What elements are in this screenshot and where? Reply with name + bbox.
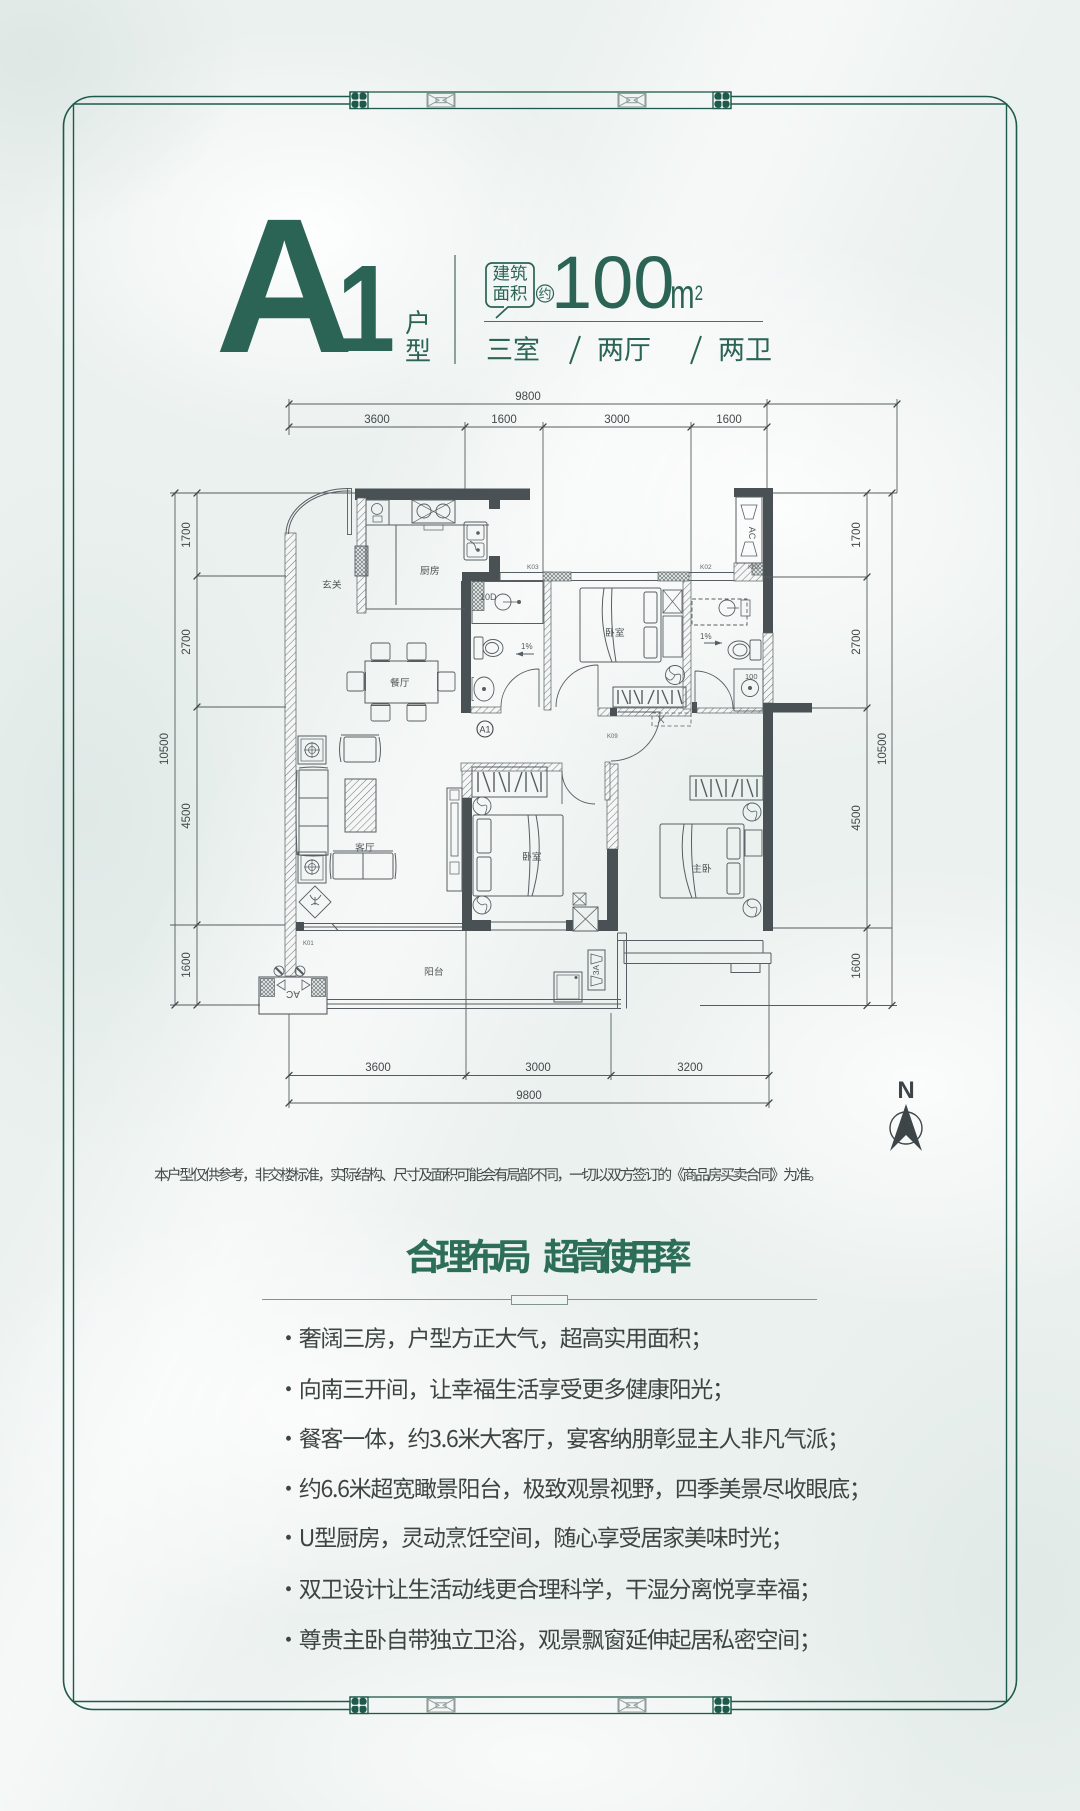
- svg-text:K02: K02: [748, 564, 760, 571]
- svg-text:K02: K02: [700, 564, 712, 571]
- svg-text:AC: AC: [286, 988, 300, 999]
- svg-text:4500: 4500: [181, 803, 193, 829]
- svg-text:3200: 3200: [677, 1062, 703, 1074]
- svg-text:N: N: [897, 1077, 914, 1104]
- svg-text:100: 100: [745, 672, 758, 681]
- svg-text:1600: 1600: [716, 414, 742, 426]
- svg-text:3000: 3000: [525, 1062, 551, 1074]
- svg-text:1700: 1700: [851, 522, 863, 548]
- svg-text:K03: K03: [527, 564, 539, 571]
- svg-text:3000: 3000: [604, 414, 630, 426]
- svg-text:3600: 3600: [365, 1062, 391, 1074]
- svg-text:1600: 1600: [851, 953, 863, 979]
- svg-text:K09: K09: [607, 734, 618, 740]
- svg-text:3600: 3600: [364, 414, 390, 426]
- svg-text:10500: 10500: [877, 733, 889, 765]
- svg-text:1600: 1600: [181, 952, 193, 978]
- svg-text:A1: A1: [479, 725, 490, 735]
- svg-text:AC: AC: [747, 527, 757, 540]
- svg-text:10D: 10D: [480, 592, 497, 602]
- svg-text:9800: 9800: [516, 1090, 542, 1102]
- svg-text:K01: K01: [303, 941, 314, 947]
- svg-text:1700: 1700: [181, 522, 193, 548]
- svg-text:2700: 2700: [181, 629, 193, 655]
- svg-text:4500: 4500: [851, 805, 863, 831]
- svg-text:1%: 1%: [521, 642, 533, 651]
- svg-text:10500: 10500: [159, 733, 171, 765]
- svg-text:1600: 1600: [491, 414, 517, 426]
- svg-text:3A: 3A: [591, 964, 601, 975]
- svg-text:9800: 9800: [515, 391, 541, 403]
- svg-text:1%: 1%: [700, 632, 712, 641]
- svg-text:2700: 2700: [851, 629, 863, 655]
